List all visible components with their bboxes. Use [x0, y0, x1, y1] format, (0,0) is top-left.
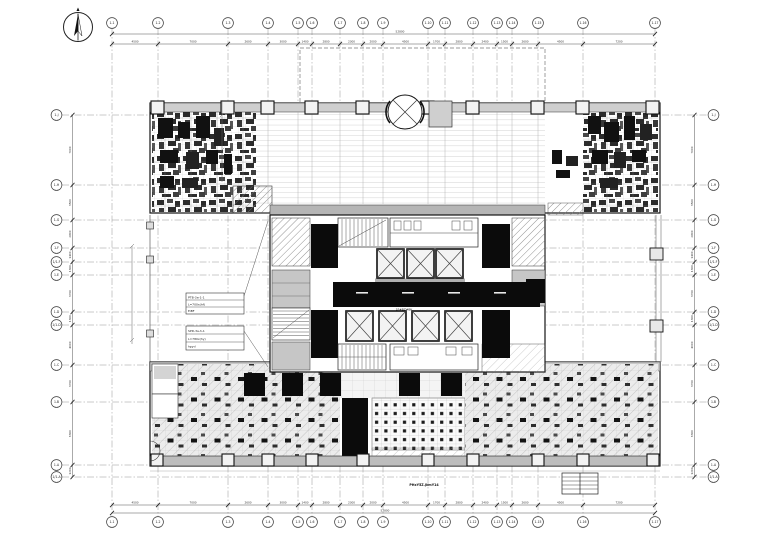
west-rooms [152, 364, 178, 418]
svg-text:1-E: 1-E [711, 273, 716, 277]
annotation-row: PTB-3a-1-1 [188, 295, 205, 299]
bottom-core-shaft [342, 398, 368, 456]
svg-text:1700: 1700 [433, 40, 440, 44]
svg-text:2000: 2000 [369, 40, 376, 44]
svg-text:1-10: 1-10 [424, 21, 431, 25]
svg-text:3700: 3700 [690, 290, 694, 297]
stair-core-left [272, 308, 310, 340]
bottom-wing [150, 362, 660, 466]
toilets-upper [390, 218, 478, 247]
annotation-table-b: SPD-3a-h-1 L=780x(hy) hpyd [186, 326, 268, 367]
svg-text:2600: 2600 [244, 40, 251, 44]
svg-text:3500: 3500 [690, 199, 694, 206]
svg-text:1-5: 1-5 [295, 21, 300, 25]
svg-text:2800: 2800 [322, 40, 329, 44]
svg-text:1200: 1200 [690, 467, 694, 474]
core-top-gray-band [270, 205, 545, 215]
svg-text:1-13: 1-13 [493, 520, 500, 524]
svg-text:1-14: 1-14 [508, 520, 515, 524]
svg-text:1-2: 1-2 [155, 21, 160, 25]
svg-text:7000: 7000 [189, 501, 196, 505]
west-colonnade [147, 215, 154, 362]
svg-text:1-9: 1-9 [380, 21, 385, 25]
svg-text:4500: 4500 [131, 40, 138, 44]
svg-text:1-7: 1-7 [337, 21, 342, 25]
svg-text:7000: 7000 [68, 146, 72, 153]
svg-text:1-12: 1-12 [469, 21, 476, 25]
svg-text:4500: 4500 [131, 501, 138, 505]
svg-text:1-C: 1-C [54, 363, 59, 367]
annotation-row: SPD-3a-h-1 [188, 329, 205, 333]
elevator-bank-upper [375, 249, 465, 282]
hatched-room-topright [548, 203, 583, 215]
svg-text:4000: 4000 [690, 341, 694, 348]
svg-text:1-G: 1-G [54, 218, 60, 222]
svg-text:1-H: 1-H [711, 183, 717, 187]
svg-text:1-3: 1-3 [225, 520, 230, 524]
svg-text:1/1-A: 1/1-A [709, 475, 718, 479]
svg-text:6300: 6300 [690, 430, 694, 437]
svg-text:1-1: 1-1 [109, 21, 114, 25]
svg-text:3500: 3500 [68, 199, 72, 206]
svg-text:1-6: 1-6 [309, 21, 314, 25]
svg-text:1-3: 1-3 [225, 21, 230, 25]
north-tip-icon [77, 8, 80, 12]
core-corridor [333, 282, 540, 307]
svg-text:2600: 2600 [244, 501, 251, 505]
svg-text:1-4: 1-4 [265, 21, 270, 25]
svg-text:1300: 1300 [690, 265, 694, 272]
svg-text:1-F: 1-F [711, 246, 716, 250]
svg-text:2800: 2800 [690, 230, 694, 237]
svg-text:1/1-F: 1/1-F [710, 260, 718, 264]
svg-text:3000: 3000 [279, 501, 286, 505]
svg-text:1300: 1300 [690, 315, 694, 322]
svg-text:2400: 2400 [481, 40, 488, 44]
svg-text:1400: 1400 [301, 40, 308, 44]
svg-text:1-2: 1-2 [155, 520, 160, 524]
svg-text:1/1-D: 1/1-D [52, 323, 61, 327]
svg-text:1-5: 1-5 [295, 520, 300, 524]
svg-text:1-1: 1-1 [109, 520, 114, 524]
annotation-row: L=780x(hy) [188, 337, 206, 341]
svg-text:1-15: 1-15 [534, 21, 541, 25]
svg-text:1-A: 1-A [54, 463, 60, 467]
south-rooms [390, 344, 478, 370]
svg-text:2800: 2800 [322, 501, 329, 505]
svg-text:1/1-D: 1/1-D [709, 323, 718, 327]
svg-text:52800: 52800 [396, 30, 405, 34]
svg-text:1-J: 1-J [711, 113, 715, 117]
svg-text:1-14: 1-14 [508, 21, 515, 25]
svg-text:1-8: 1-8 [360, 21, 365, 25]
floor-plan-drawing: 1F#BZ#BK PTB-3a-1-1 L=7 [0, 0, 780, 544]
leader-line [244, 221, 268, 296]
svg-text:7000: 7000 [189, 40, 196, 44]
svg-text:2600: 2600 [521, 501, 528, 505]
svg-text:1500: 1500 [501, 40, 508, 44]
svg-text:52800: 52800 [381, 509, 390, 513]
annotation-row: EiBF [188, 309, 195, 313]
bottom-note: PHxY5Z.jkmY14 [409, 483, 439, 487]
svg-text:1-B: 1-B [54, 400, 59, 404]
svg-text:1-B: 1-B [711, 400, 716, 404]
svg-text:1-12: 1-12 [469, 520, 476, 524]
svg-text:3700: 3700 [690, 380, 694, 387]
svg-text:4500: 4500 [402, 501, 409, 505]
svg-text:3700: 3700 [68, 380, 72, 387]
annotation-row: L=700x(hf) [188, 302, 205, 306]
svg-text:1-9: 1-9 [380, 520, 385, 524]
floor-plan-canvas: 1F#BZ#BK PTB-3a-1-1 L=7 [0, 0, 780, 544]
svg-text:1-G: 1-G [711, 218, 717, 222]
east-colonnade [650, 215, 663, 362]
svg-text:1-11: 1-11 [441, 21, 448, 25]
svg-text:1-13: 1-13 [493, 21, 500, 25]
stair-lower [338, 344, 386, 370]
svg-text:1-10: 1-10 [424, 520, 431, 524]
svg-text:2800: 2800 [455, 501, 462, 505]
svg-text:1-C: 1-C [711, 363, 716, 367]
entrance-vestibule [429, 101, 452, 127]
central-core: 1F#BZ#BK [270, 215, 545, 372]
svg-text:1-H: 1-H [54, 183, 60, 187]
svg-text:1-F: 1-F [54, 246, 59, 250]
annotation-row: hpyd [188, 345, 196, 349]
svg-text:1-8: 1-8 [360, 520, 365, 524]
svg-text:3700: 3700 [68, 290, 72, 297]
svg-text:1-16: 1-16 [579, 21, 586, 25]
svg-text:1-16: 1-16 [579, 520, 586, 524]
svg-text:7200: 7200 [615, 40, 622, 44]
svg-text:4500: 4500 [557, 501, 564, 505]
svg-text:1-6: 1-6 [309, 520, 314, 524]
svg-text:2800: 2800 [455, 40, 462, 44]
svg-text:2000: 2000 [369, 501, 376, 505]
exterior-stair [562, 473, 598, 494]
svg-text:1-J: 1-J [54, 113, 58, 117]
svg-text:1-E: 1-E [54, 273, 59, 277]
svg-text:1400: 1400 [68, 251, 72, 258]
svg-text:1-17: 1-17 [651, 520, 658, 524]
canopy-dashed-outline [300, 48, 545, 103]
svg-text:2400: 2400 [481, 501, 488, 505]
svg-text:1/1-F: 1/1-F [53, 260, 61, 264]
svg-text:2800: 2800 [68, 230, 72, 237]
svg-text:2300: 2300 [348, 501, 355, 505]
svg-text:1-D: 1-D [54, 310, 60, 314]
svg-text:1500: 1500 [501, 501, 508, 505]
svg-text:1-4: 1-4 [265, 520, 270, 524]
svg-text:6300: 6300 [68, 430, 72, 437]
north-arrow-compass [64, 8, 93, 42]
svg-text:1/1-A: 1/1-A [52, 475, 61, 479]
svg-text:1400: 1400 [301, 501, 308, 505]
svg-text:2600: 2600 [521, 40, 528, 44]
svg-text:7200: 7200 [615, 501, 622, 505]
svg-text:1-15: 1-15 [534, 520, 541, 524]
svg-text:4500: 4500 [557, 40, 564, 44]
svg-text:1200: 1200 [68, 467, 72, 474]
svg-text:1-A: 1-A [711, 463, 717, 467]
annotation-table-a: PTB-3a-1-1 L=700x(hf) EiBF [186, 221, 268, 314]
svg-text:1-D: 1-D [711, 310, 717, 314]
svg-text:1-17: 1-17 [651, 21, 658, 25]
open-office-right [465, 364, 658, 456]
svg-text:1400: 1400 [690, 251, 694, 258]
svg-text:1-11: 1-11 [441, 520, 448, 524]
svg-text:7000: 7000 [690, 146, 694, 153]
svg-text:2300: 2300 [348, 40, 355, 44]
svg-text:1700: 1700 [433, 501, 440, 505]
core-rooms-left [272, 218, 310, 370]
svg-text:1-7: 1-7 [337, 520, 342, 524]
svg-text:1300: 1300 [68, 265, 72, 272]
central-light-zone [372, 398, 465, 450]
svg-text:4000: 4000 [68, 341, 72, 348]
svg-text:4500: 4500 [402, 40, 409, 44]
svg-text:3000: 3000 [279, 40, 286, 44]
svg-text:1300: 1300 [68, 315, 72, 322]
